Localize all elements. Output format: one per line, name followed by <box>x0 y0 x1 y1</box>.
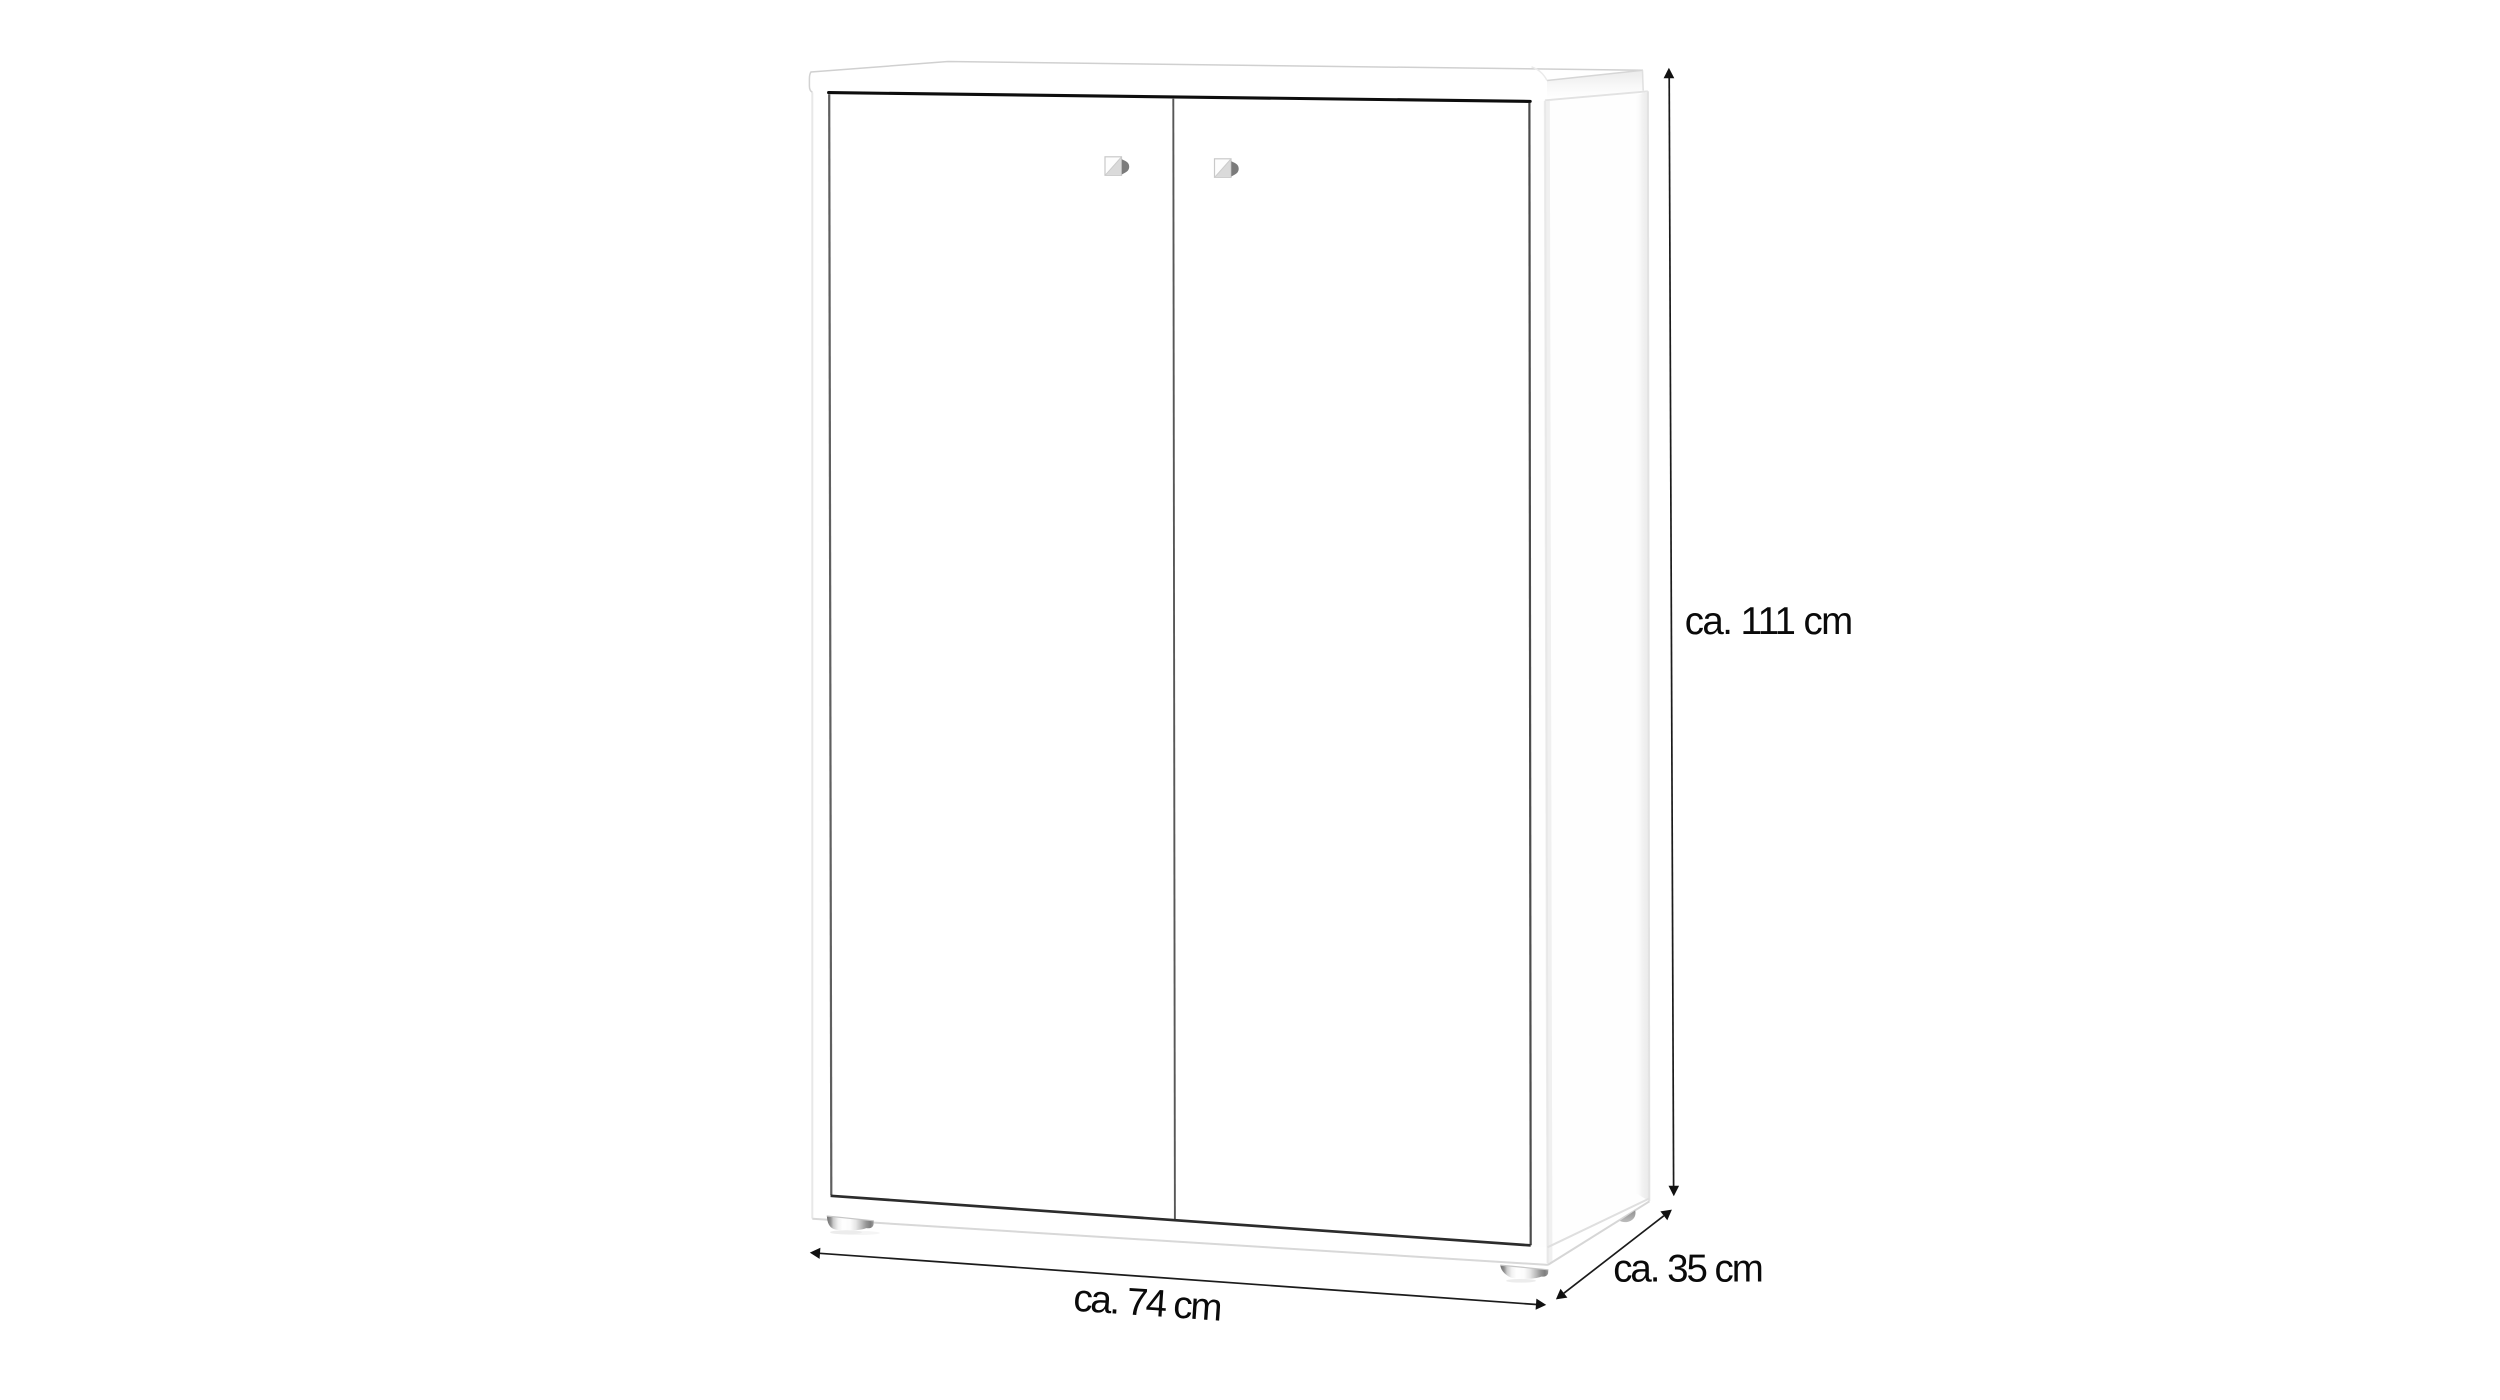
svg-text:ca. 35 cm: ca. 35 cm <box>1613 1248 1762 1291</box>
svg-text:ca. 111 cm: ca. 111 cm <box>1685 600 1852 643</box>
